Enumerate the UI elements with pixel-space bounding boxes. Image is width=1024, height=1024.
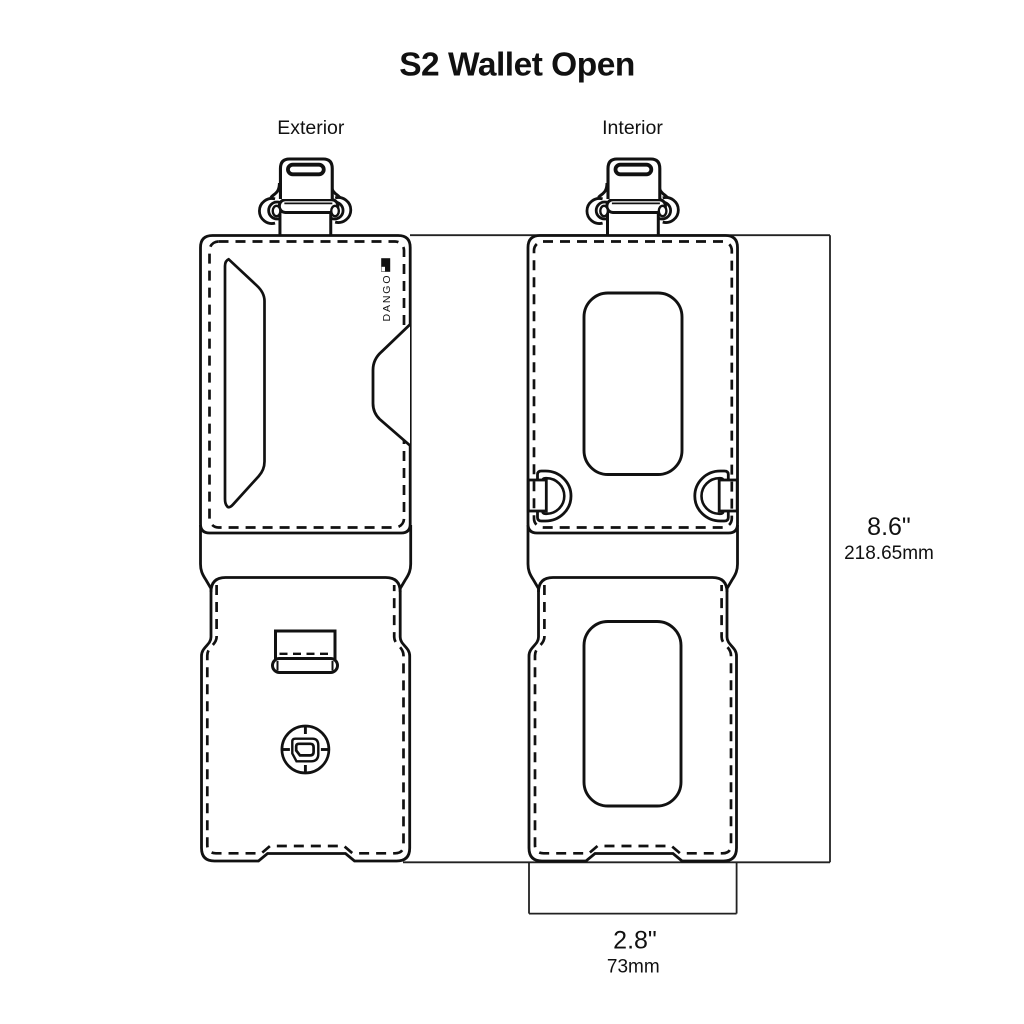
svg-text:Exterior: Exterior bbox=[277, 117, 345, 139]
svg-text:218.65mm: 218.65mm bbox=[844, 543, 934, 564]
svg-text:Interior: Interior bbox=[602, 117, 663, 139]
svg-text:73mm: 73mm bbox=[607, 957, 660, 978]
svg-text:S2 Wallet Open: S2 Wallet Open bbox=[399, 47, 635, 84]
svg-text:DANGO: DANGO bbox=[381, 276, 393, 322]
svg-text:8.6": 8.6" bbox=[867, 513, 911, 541]
svg-text:2.8": 2.8" bbox=[613, 927, 657, 955]
